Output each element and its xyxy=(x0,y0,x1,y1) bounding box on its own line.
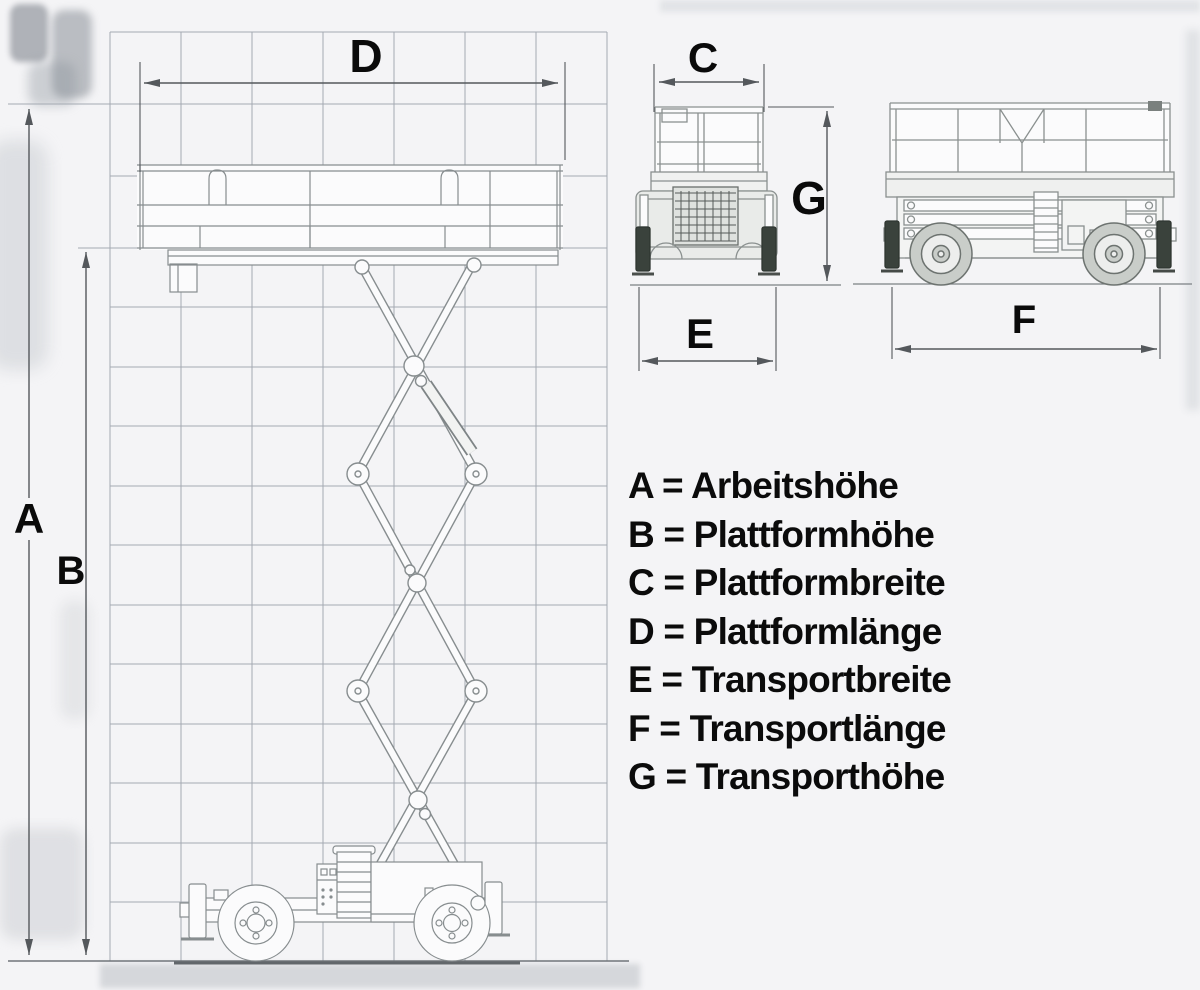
legend-item: D = Plattformlänge xyxy=(628,608,951,657)
dim-label-c: C xyxy=(688,37,718,79)
legend-item: F = Transportlänge xyxy=(628,705,951,754)
legend-item: C = Plattformbreite xyxy=(628,559,951,608)
ground-line xyxy=(8,284,1192,963)
dim-label-e: E xyxy=(686,313,714,355)
transport-side-view xyxy=(881,101,1176,285)
dimension-legend: A = Arbeitshöhe B = Plattformhöhe C = Pl… xyxy=(628,462,951,802)
legend-item: A = Arbeitshöhe xyxy=(628,462,951,511)
dim-label-a: A xyxy=(11,498,47,540)
technical-drawing-svg xyxy=(0,0,1200,990)
dim-label-b: B xyxy=(57,551,86,591)
dim-label-g: G xyxy=(791,175,827,221)
dim-label-d: D xyxy=(349,33,382,79)
legend-item: B = Plattformhöhe xyxy=(628,511,951,560)
dim-label-f: F xyxy=(1012,300,1036,340)
legend-item: E = Transportbreite xyxy=(628,656,951,705)
transport-front-view xyxy=(632,107,780,274)
scissor-lift-dimension-diagram: A B D C G E F A = Arbeitshöhe B = Plattf… xyxy=(0,0,1200,990)
elevated-lift-side-view xyxy=(137,165,563,961)
legend-item: G = Transporthöhe xyxy=(628,753,951,802)
